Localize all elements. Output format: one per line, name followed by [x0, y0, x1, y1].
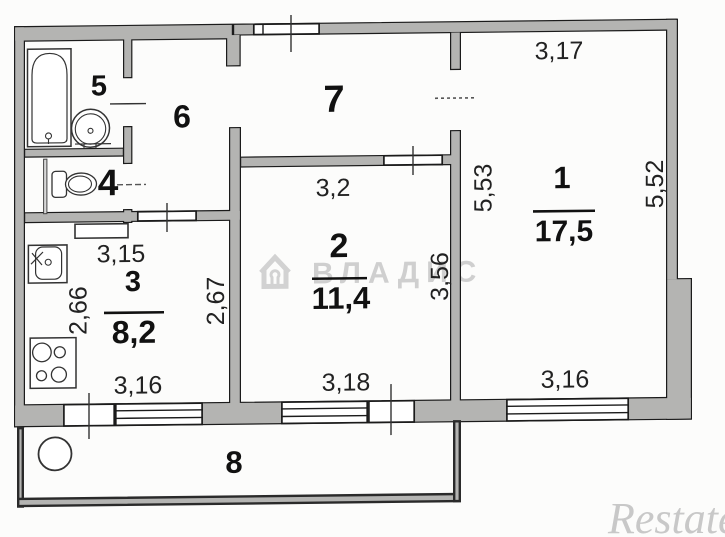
svg-text:3,56: 3,56	[426, 252, 454, 301]
svg-text:2,66: 2,66	[65, 286, 93, 335]
svg-text:5,52: 5,52	[641, 160, 669, 209]
svg-text:7: 7	[323, 79, 344, 121]
svg-text:3,2: 3,2	[316, 174, 351, 202]
svg-text:4: 4	[98, 162, 119, 203]
svg-text:3,18: 3,18	[322, 368, 371, 397]
svg-text:2,67: 2,67	[202, 277, 230, 326]
svg-text:3: 3	[125, 266, 141, 298]
svg-text:2: 2	[330, 227, 349, 265]
svg-text:6: 6	[173, 98, 191, 134]
svg-text:3,17: 3,17	[535, 37, 584, 66]
svg-text:Restate: Restate	[607, 494, 725, 537]
svg-text:1: 1	[553, 160, 570, 195]
svg-text:3,16: 3,16	[114, 371, 163, 400]
svg-text:8,2: 8,2	[112, 314, 156, 351]
svg-text:3,16: 3,16	[541, 365, 590, 394]
svg-text:8: 8	[225, 445, 242, 480]
svg-text:17,5: 17,5	[535, 215, 593, 249]
svg-text:3,15: 3,15	[97, 240, 146, 269]
svg-text:5: 5	[91, 70, 107, 102]
svg-text:5,53: 5,53	[470, 164, 498, 213]
svg-text:11,4: 11,4	[312, 280, 371, 316]
